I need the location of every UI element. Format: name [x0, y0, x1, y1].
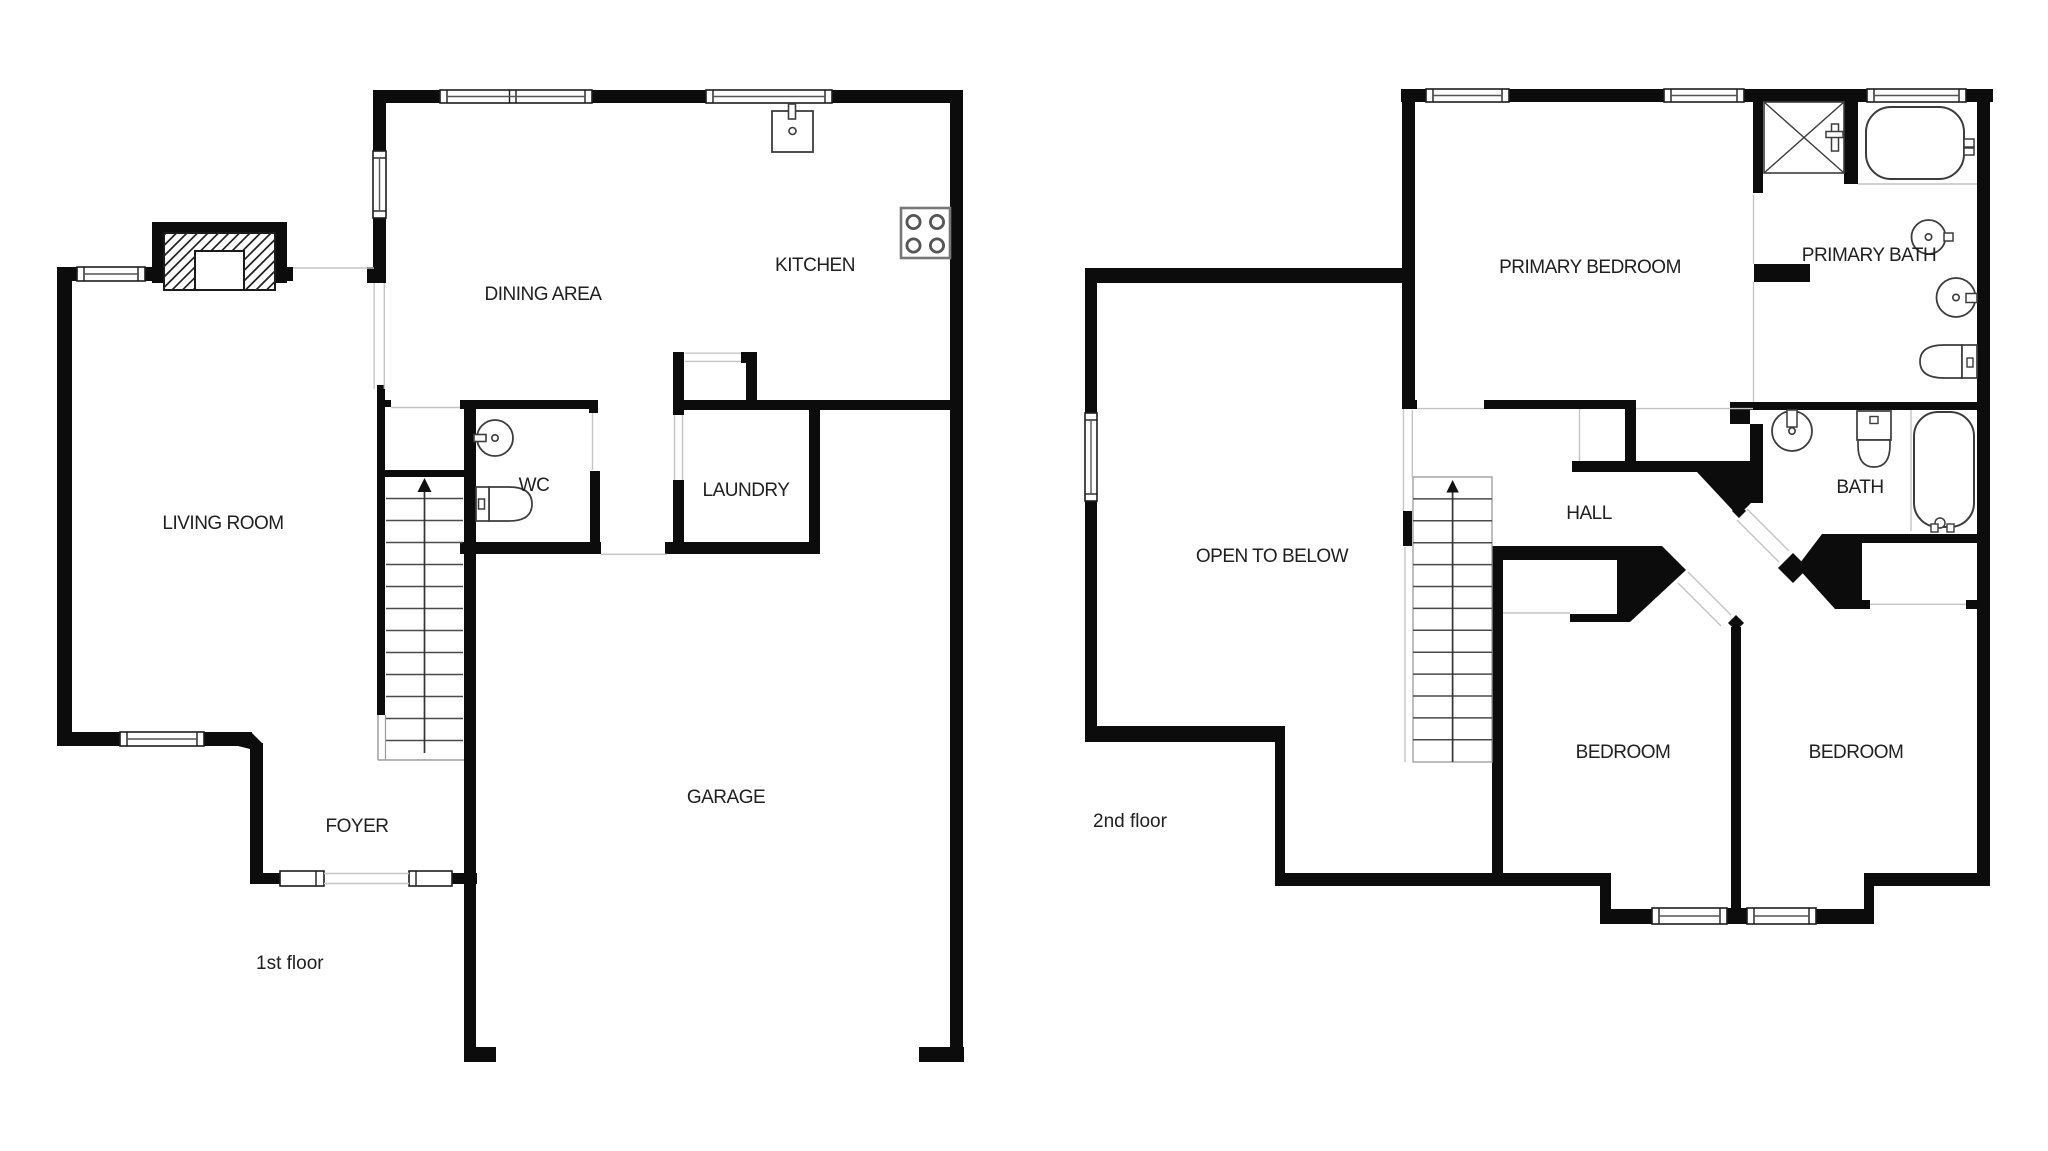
svg-text:2nd floor: 2nd floor: [1093, 811, 1168, 832]
svg-text:BATH: BATH: [1836, 477, 1883, 498]
svg-text:LAUNDRY: LAUNDRY: [703, 480, 791, 501]
svg-text:HALL: HALL: [1566, 503, 1612, 524]
svg-text:LIVING ROOM: LIVING ROOM: [162, 513, 283, 534]
svg-text:WC: WC: [519, 475, 550, 496]
svg-text:DINING AREA: DINING AREA: [485, 284, 603, 305]
svg-text:1st floor: 1st floor: [256, 953, 324, 974]
svg-text:FOYER: FOYER: [326, 816, 389, 837]
svg-text:BEDROOM: BEDROOM: [1576, 742, 1671, 763]
svg-text:PRIMARY BATH: PRIMARY BATH: [1802, 245, 1936, 266]
svg-text:BEDROOM: BEDROOM: [1809, 742, 1904, 763]
svg-text:KITCHEN: KITCHEN: [775, 255, 855, 276]
svg-text:GARAGE: GARAGE: [687, 787, 765, 808]
svg-text:PRIMARY BEDROOM: PRIMARY BEDROOM: [1499, 257, 1681, 278]
svg-text:OPEN TO BELOW: OPEN TO BELOW: [1196, 546, 1349, 567]
